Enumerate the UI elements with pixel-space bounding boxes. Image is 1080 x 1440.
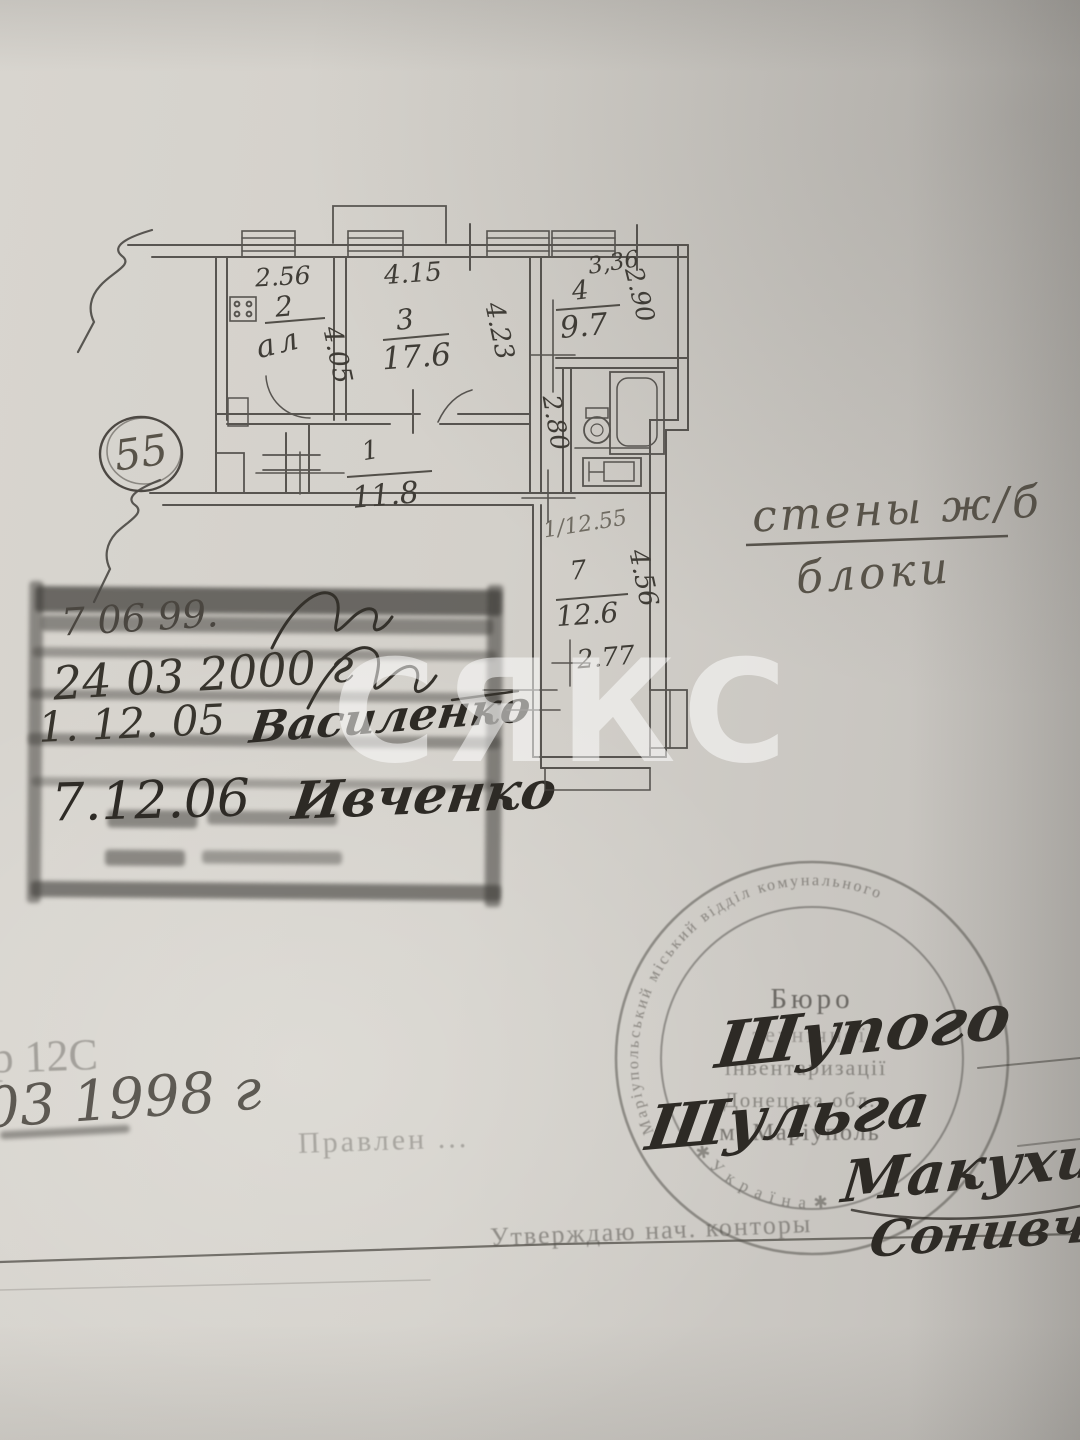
room3-number: 3 bbox=[395, 305, 416, 335]
room2-number: 2 bbox=[274, 292, 294, 321]
room7-area: 12.6 bbox=[555, 599, 619, 631]
room3-width-dim: 4.15 bbox=[383, 259, 443, 289]
room7-width-dim: 2.77 bbox=[576, 643, 636, 674]
room3-area: 17.6 bbox=[381, 340, 452, 376]
wall-note-bottom: блоки bbox=[795, 547, 954, 602]
room1-area: 11.8 bbox=[351, 478, 420, 514]
room2-width-dim: 2.56 bbox=[254, 263, 311, 291]
stamp-block-signature-squiggles bbox=[272, 593, 518, 708]
document-photo: Маріупольський міський відділ комунально… bbox=[0, 0, 1080, 1440]
room7-number: 7 bbox=[569, 557, 588, 585]
room4-number: 4 bbox=[571, 277, 590, 305]
room4-area: 9.7 bbox=[559, 310, 609, 344]
